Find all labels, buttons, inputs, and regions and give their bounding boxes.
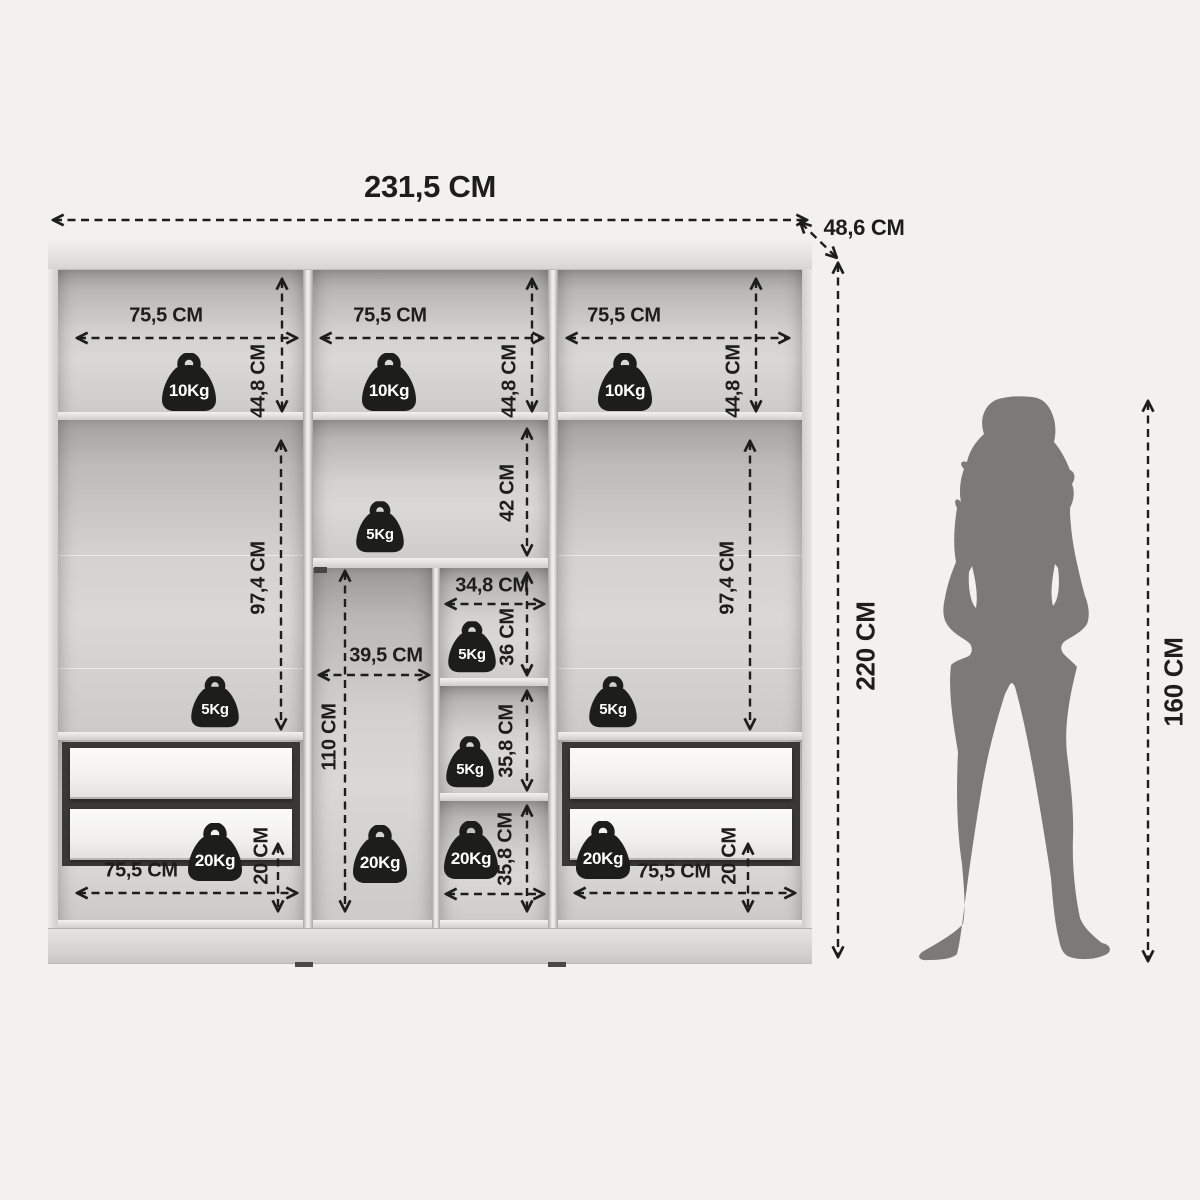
dim-label-top1-height: 44,8 CM bbox=[248, 344, 271, 418]
weight-badge-cell2: 5Kg bbox=[442, 736, 498, 789]
dim-label-hang-left-height: 97,4 CM bbox=[248, 541, 271, 615]
weight-badge-middle-top: 5Kg bbox=[352, 501, 408, 554]
dim-label-cell2-height: 35,8 CM bbox=[496, 704, 519, 778]
weight-label: 20Kg bbox=[183, 851, 247, 871]
weight-badge-top3: 10Kg bbox=[593, 353, 657, 413]
weight-badge-hang-left: 5Kg bbox=[187, 676, 243, 729]
wardrobe-foot bbox=[548, 962, 566, 967]
weight-badge-drawers-left: 20Kg bbox=[183, 823, 247, 883]
dim-label-drawer-right-height: 20 CM bbox=[719, 827, 742, 884]
dim-label-top2-width: 75,5 CM bbox=[353, 305, 427, 328]
wardrobe-foot bbox=[295, 962, 313, 967]
dim-label-overall-width: 231,5 CM bbox=[364, 169, 496, 205]
dim-label-person-height: 160 CM bbox=[1159, 637, 1190, 726]
dim-label-drawer-left-width: 75,5 CM bbox=[104, 860, 178, 883]
weight-label: 10Kg bbox=[357, 381, 421, 401]
drawer-left-1 bbox=[70, 748, 292, 799]
divider-middle-right bbox=[548, 270, 558, 928]
weight-badge-drawers-right: 20Kg bbox=[571, 821, 635, 881]
weight-badge-top2: 10Kg bbox=[357, 353, 421, 413]
wardrobe-dimension-diagram: 231,5 CM 48,6 CM 220 CM 160 CM 75,5 CM 7… bbox=[0, 0, 1200, 1200]
dim-label-hang-right-height: 97,4 CM bbox=[717, 541, 740, 615]
weight-badge-cell1: 5Kg bbox=[444, 621, 500, 674]
weight-label: 20Kg bbox=[439, 849, 503, 869]
weight-label: 5Kg bbox=[585, 701, 641, 719]
dim-label-top3-width: 75,5 CM bbox=[587, 305, 661, 328]
dim-label-overall-height: 220 CM bbox=[851, 601, 882, 690]
wardrobe-top-panel bbox=[48, 241, 812, 270]
weight-label: 5Kg bbox=[352, 526, 408, 544]
dim-label-drawer-right-width: 75,5 CM bbox=[637, 861, 711, 884]
weight-badge-hang-right: 5Kg bbox=[585, 676, 641, 729]
wardrobe-left-wall bbox=[48, 269, 58, 928]
dim-label-top1-width: 75,5 CM bbox=[129, 305, 203, 328]
dim-label-top2-height: 44,8 CM bbox=[499, 344, 522, 418]
person-silhouette bbox=[919, 396, 1110, 960]
weight-label: 20Kg bbox=[571, 849, 635, 869]
weight-label: 20Kg bbox=[348, 853, 412, 873]
dim-label-middle-right-width: 34,8 CM bbox=[455, 575, 529, 598]
weight-label: 10Kg bbox=[157, 381, 221, 401]
weight-badge-cell3: 20Kg bbox=[439, 821, 503, 881]
drawer-right-1 bbox=[570, 748, 792, 799]
weight-label: 5Kg bbox=[187, 701, 243, 719]
hanging-rod-bracket bbox=[314, 567, 327, 573]
dim-label-drawer-left-height: 20 CM bbox=[251, 827, 274, 884]
weight-badge-top1: 10Kg bbox=[157, 353, 221, 413]
divider-left-middle bbox=[303, 270, 313, 928]
wardrobe-right-wall bbox=[802, 269, 812, 928]
weight-badge-middle-left: 20Kg bbox=[348, 825, 412, 885]
weight-label: 5Kg bbox=[442, 761, 498, 779]
dim-label-middle-left-height: 110 CM bbox=[319, 703, 342, 770]
dim-label-middle-top-height: 42 CM bbox=[497, 464, 520, 521]
dim-label-middle-left-width: 39,5 CM bbox=[349, 645, 423, 668]
wardrobe-plinth bbox=[48, 928, 812, 964]
weight-label: 10Kg bbox=[593, 381, 657, 401]
weight-label: 5Kg bbox=[444, 646, 500, 664]
dim-label-top3-height: 44,8 CM bbox=[723, 344, 746, 418]
dim-label-depth: 48,6 CM bbox=[823, 215, 904, 241]
